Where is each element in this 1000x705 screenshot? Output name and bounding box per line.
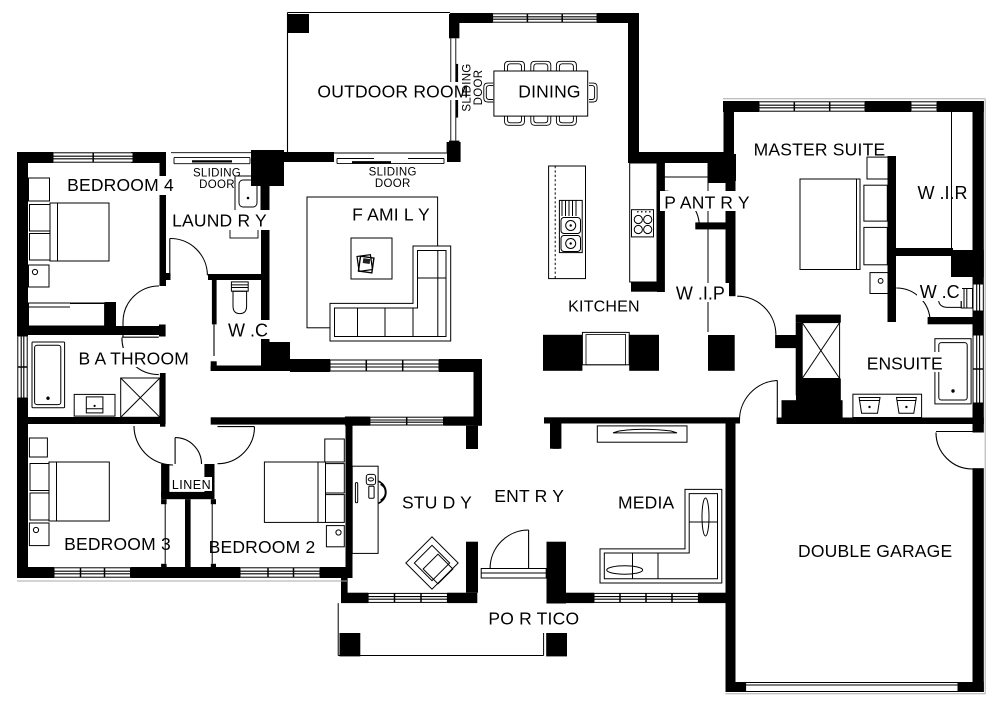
svg-text:B A THROOM: B A THROOM [79, 349, 190, 369]
svg-text:KITCHEN: KITCHEN [568, 299, 640, 316]
svg-text:BEDROOM 3: BEDROOM 3 [64, 534, 171, 554]
svg-text:SLIDING: SLIDING [462, 63, 474, 111]
svg-text:ENSUITE: ENSUITE [867, 354, 943, 374]
svg-text:DOOR: DOOR [473, 70, 485, 106]
svg-text:F AMI L Y: F AMI L Y [352, 205, 430, 225]
svg-text:DOUBLE GARAGE: DOUBLE GARAGE [798, 541, 952, 561]
svg-text:W .I.P: W .I.P [676, 284, 725, 304]
svg-text:STU D Y: STU D Y [402, 493, 472, 513]
svg-text:W .C: W .C [228, 321, 268, 341]
svg-text:OUTDOOR ROOM: OUTDOOR ROOM [317, 82, 468, 102]
svg-text:P ANT R Y: P ANT R Y [664, 193, 750, 213]
svg-text:W .C: W .C [920, 282, 960, 302]
svg-text:PO R TICO: PO R TICO [488, 609, 579, 629]
svg-text:BEDROOM 4: BEDROOM 4 [67, 175, 174, 195]
svg-text:DOOR: DOOR [199, 179, 235, 191]
svg-text:MEDIA: MEDIA [618, 493, 675, 513]
svg-text:BEDROOM 2: BEDROOM 2 [209, 537, 316, 557]
svg-text:MASTER SUITE: MASTER SUITE [754, 140, 886, 160]
svg-text:DINING: DINING [518, 82, 580, 102]
svg-text:LINEN: LINEN [172, 478, 211, 492]
svg-text:LAUND R Y: LAUND R Y [172, 211, 267, 231]
svg-text:SLIDING: SLIDING [369, 167, 417, 179]
svg-text:W .I.R: W .I.R [918, 183, 968, 203]
svg-text:DOOR: DOOR [375, 178, 411, 190]
svg-text:ENT R Y: ENT R Y [494, 486, 564, 506]
svg-text:SLIDING: SLIDING [193, 168, 241, 180]
